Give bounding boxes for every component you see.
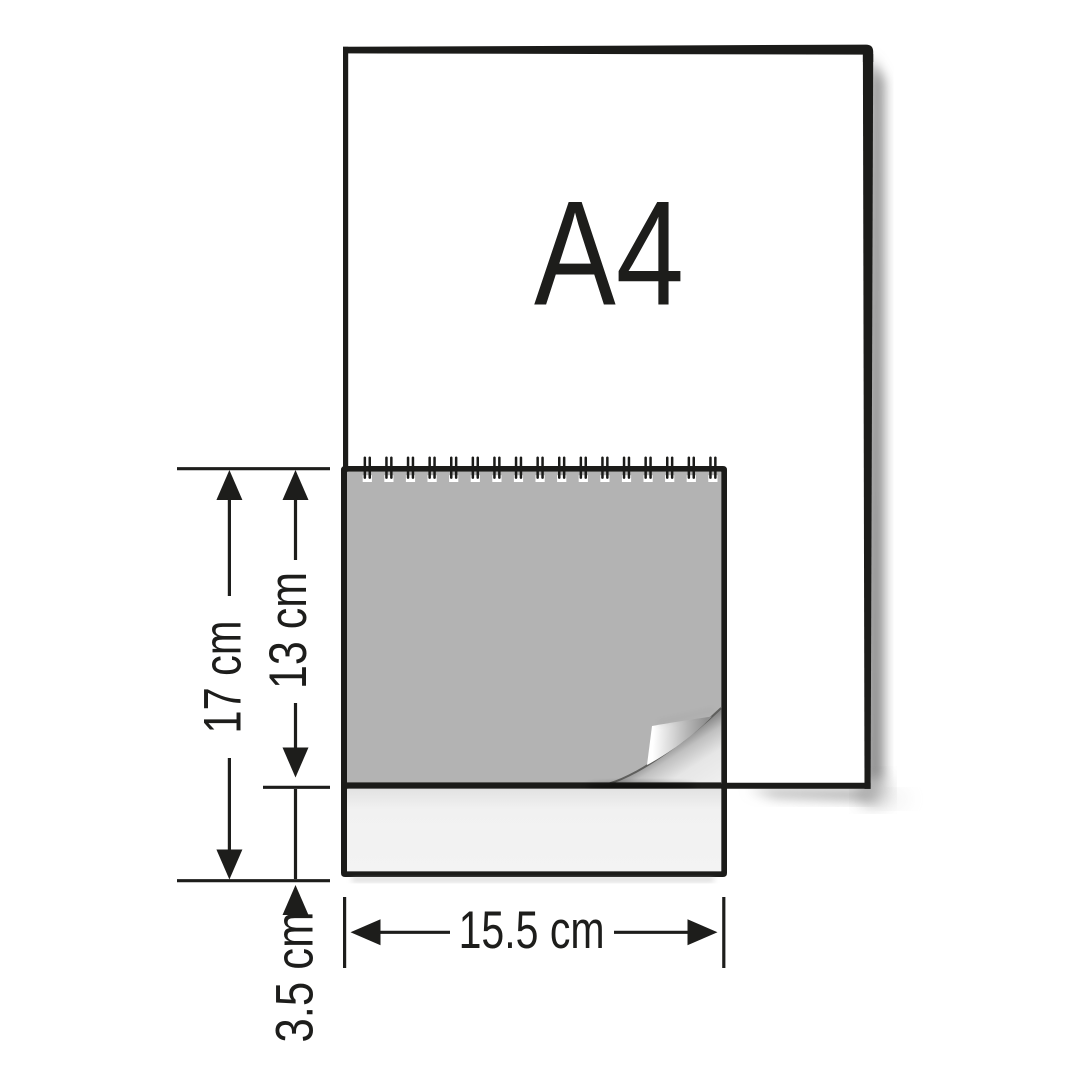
svg-text:A4: A4: [534, 170, 684, 337]
svg-text:15.5 cm: 15.5 cm: [459, 901, 605, 960]
svg-text:17 cm: 17 cm: [194, 621, 253, 734]
svg-text:3.5 cm: 3.5 cm: [266, 912, 325, 1043]
svg-text:13 cm: 13 cm: [259, 572, 318, 689]
